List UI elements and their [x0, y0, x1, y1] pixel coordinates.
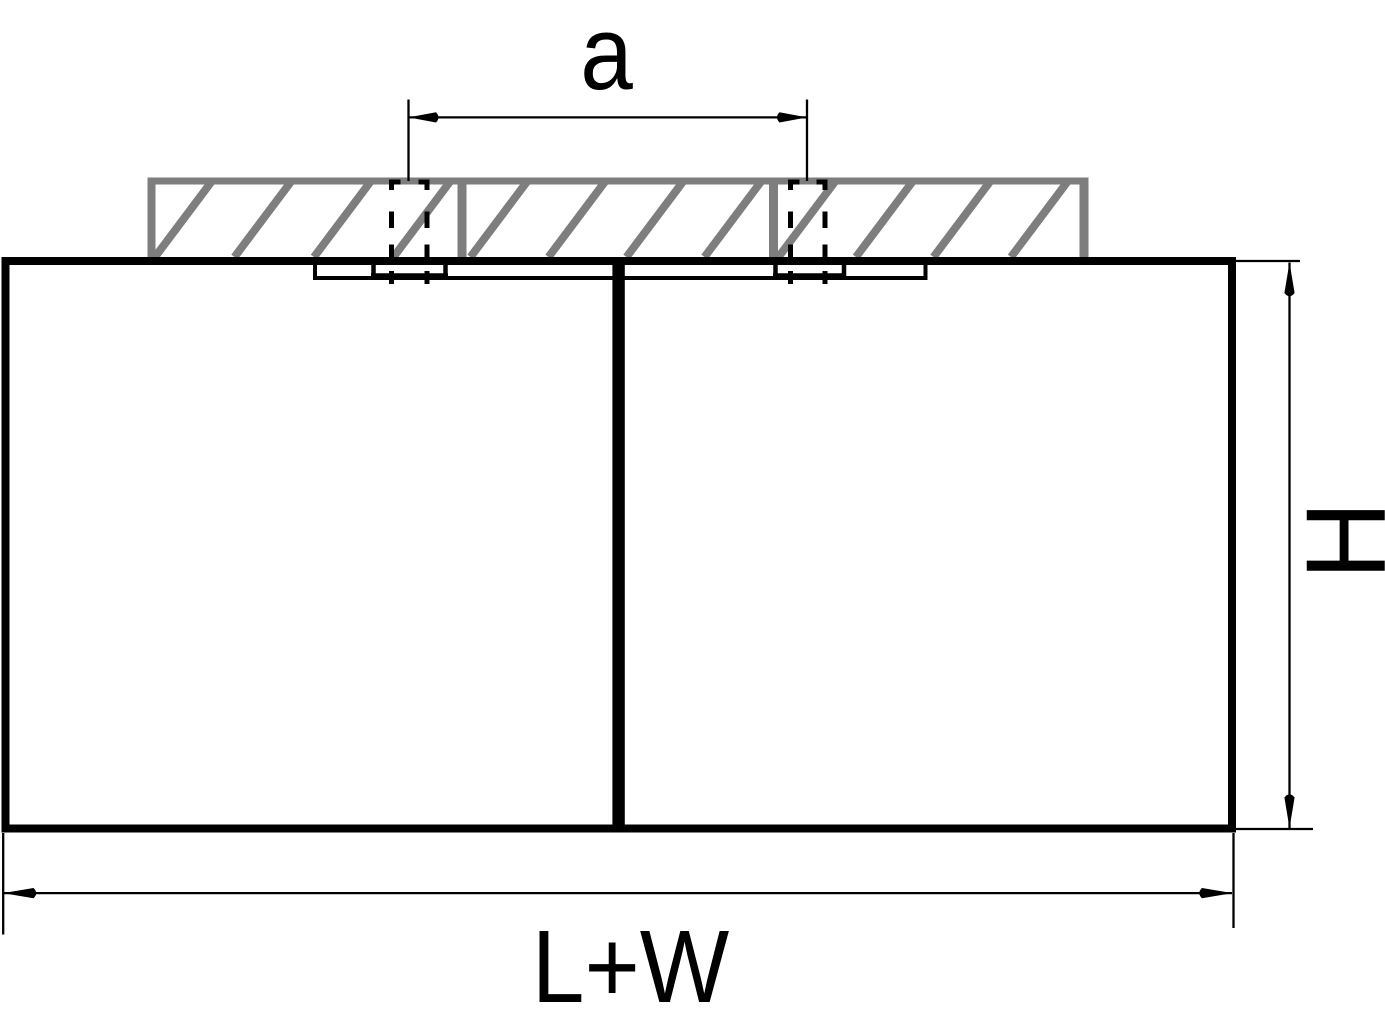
svg-text:a: a: [580, 0, 633, 112]
svg-text:H: H: [1284, 501, 1385, 579]
svg-text:L+W: L+W: [532, 908, 730, 1024]
